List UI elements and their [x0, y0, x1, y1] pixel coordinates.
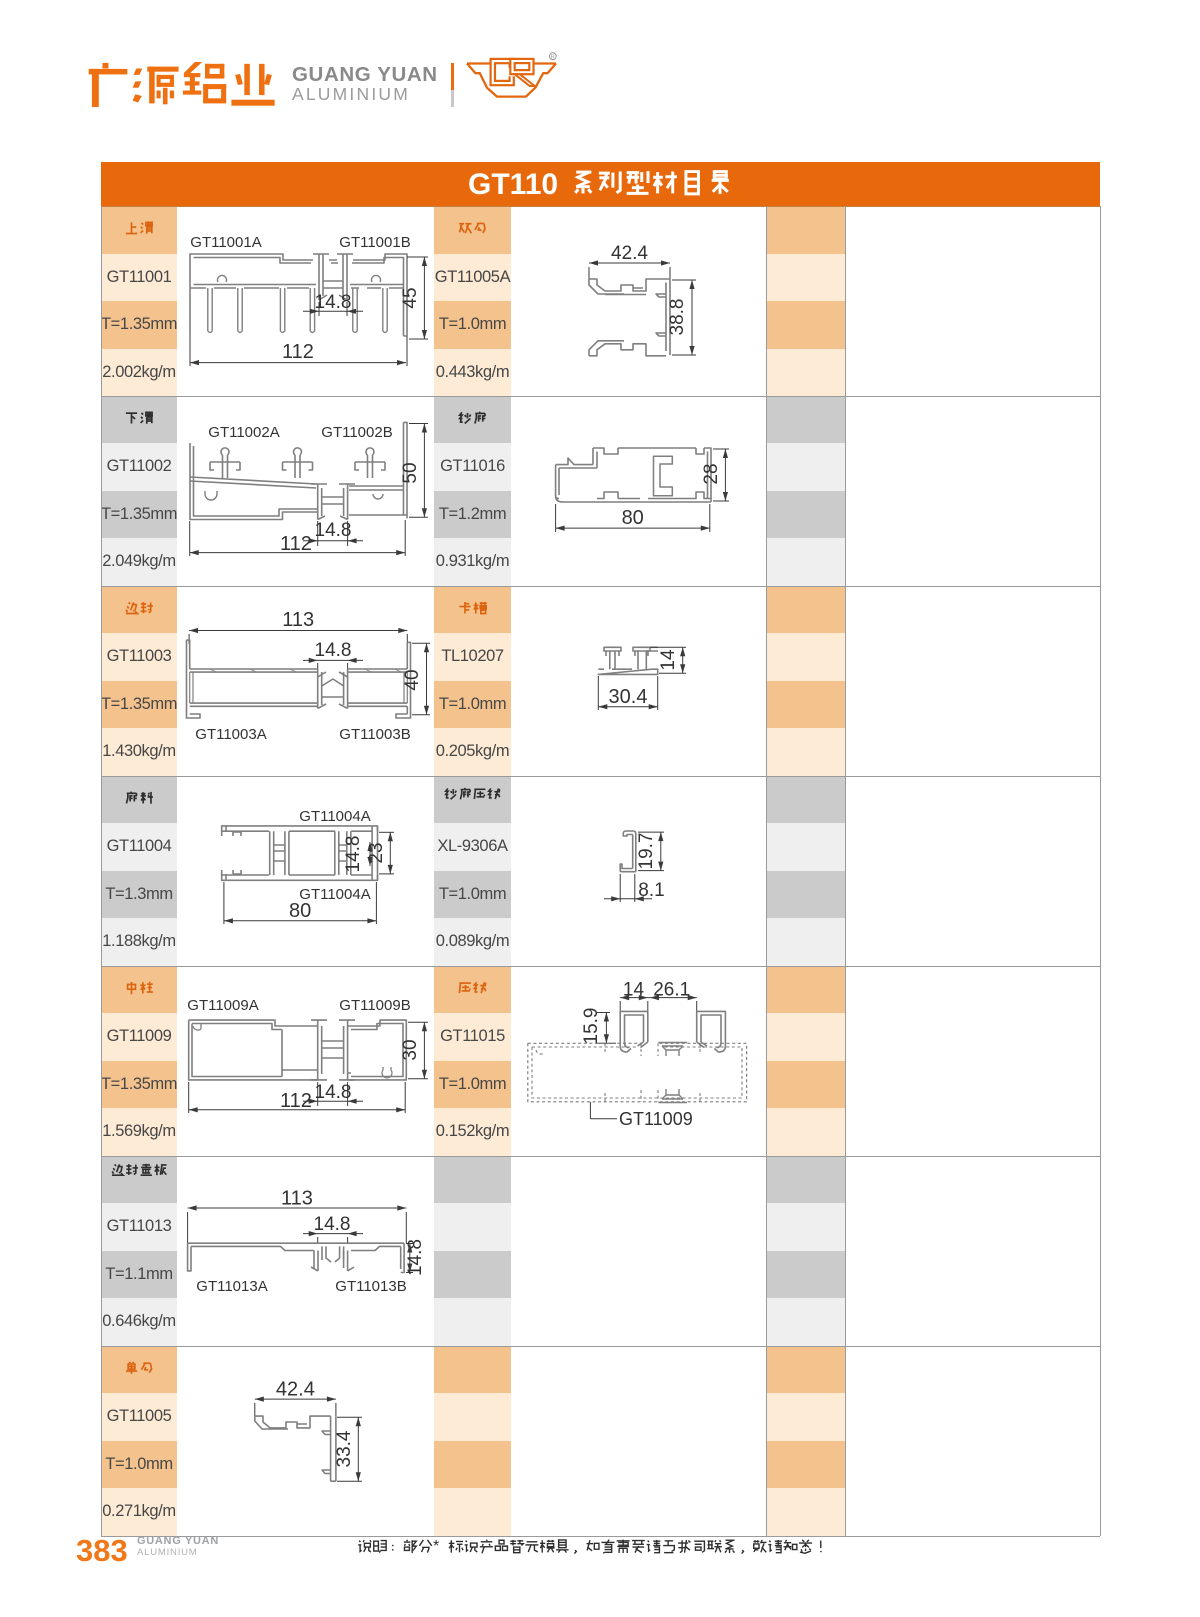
svg-text:8.1: 8.1 [638, 880, 664, 901]
svg-text:GT11001A: GT11001A [190, 234, 261, 251]
svg-text:GT11003B: GT11003B [339, 726, 410, 743]
svg-text:113: 113 [282, 609, 314, 631]
svg-text:GT11013B: GT11013B [335, 1278, 406, 1295]
svg-text:GT11004A: GT11004A [299, 808, 370, 825]
svg-text:GT11002B: GT11002B [321, 424, 392, 441]
svg-text:38.8: 38.8 [667, 299, 688, 336]
svg-text:GT11001B: GT11001B [339, 234, 410, 251]
svg-text:45: 45 [400, 287, 421, 308]
svg-text:14.8: 14.8 [315, 640, 352, 661]
svg-text:14.8: 14.8 [315, 292, 352, 313]
svg-text:19.7: 19.7 [636, 833, 657, 870]
svg-text:14.8: 14.8 [315, 520, 352, 541]
svg-text:112: 112 [280, 1090, 312, 1112]
svg-text:14.8: 14.8 [314, 1214, 351, 1235]
svg-text:GT11009B: GT11009B [339, 997, 410, 1014]
svg-text:*: * [433, 1538, 439, 1555]
svg-text:GT11009A: GT11009A [187, 997, 258, 1014]
svg-text:GT11009: GT11009 [619, 1109, 693, 1129]
svg-text:113: 113 [281, 1188, 313, 1210]
svg-text:42.4: 42.4 [611, 243, 648, 264]
svg-text:30: 30 [400, 1039, 421, 1060]
svg-text:42.4: 42.4 [276, 1379, 315, 1401]
svg-text:GT11002A: GT11002A [208, 424, 279, 441]
svg-text:112: 112 [280, 533, 312, 555]
svg-text:GT11003A: GT11003A [195, 726, 266, 743]
svg-text:14.8: 14.8 [405, 1239, 426, 1276]
svg-text:23: 23 [366, 842, 387, 863]
svg-text:30.4: 30.4 [609, 686, 648, 708]
svg-text:112: 112 [282, 341, 314, 363]
svg-text:40: 40 [402, 669, 423, 690]
svg-text:80: 80 [289, 900, 311, 922]
svg-text:80: 80 [622, 507, 644, 529]
svg-text:R: R [551, 54, 555, 60]
svg-text:14.8: 14.8 [315, 1082, 352, 1103]
svg-text:50: 50 [400, 462, 421, 483]
svg-text:GT11013A: GT11013A [196, 1278, 267, 1295]
svg-text:33.4: 33.4 [334, 1430, 355, 1467]
svg-text:14.8: 14.8 [343, 836, 364, 873]
svg-text:15.9: 15.9 [581, 1008, 602, 1045]
svg-text:28: 28 [701, 463, 722, 484]
svg-text:14: 14 [658, 649, 679, 671]
